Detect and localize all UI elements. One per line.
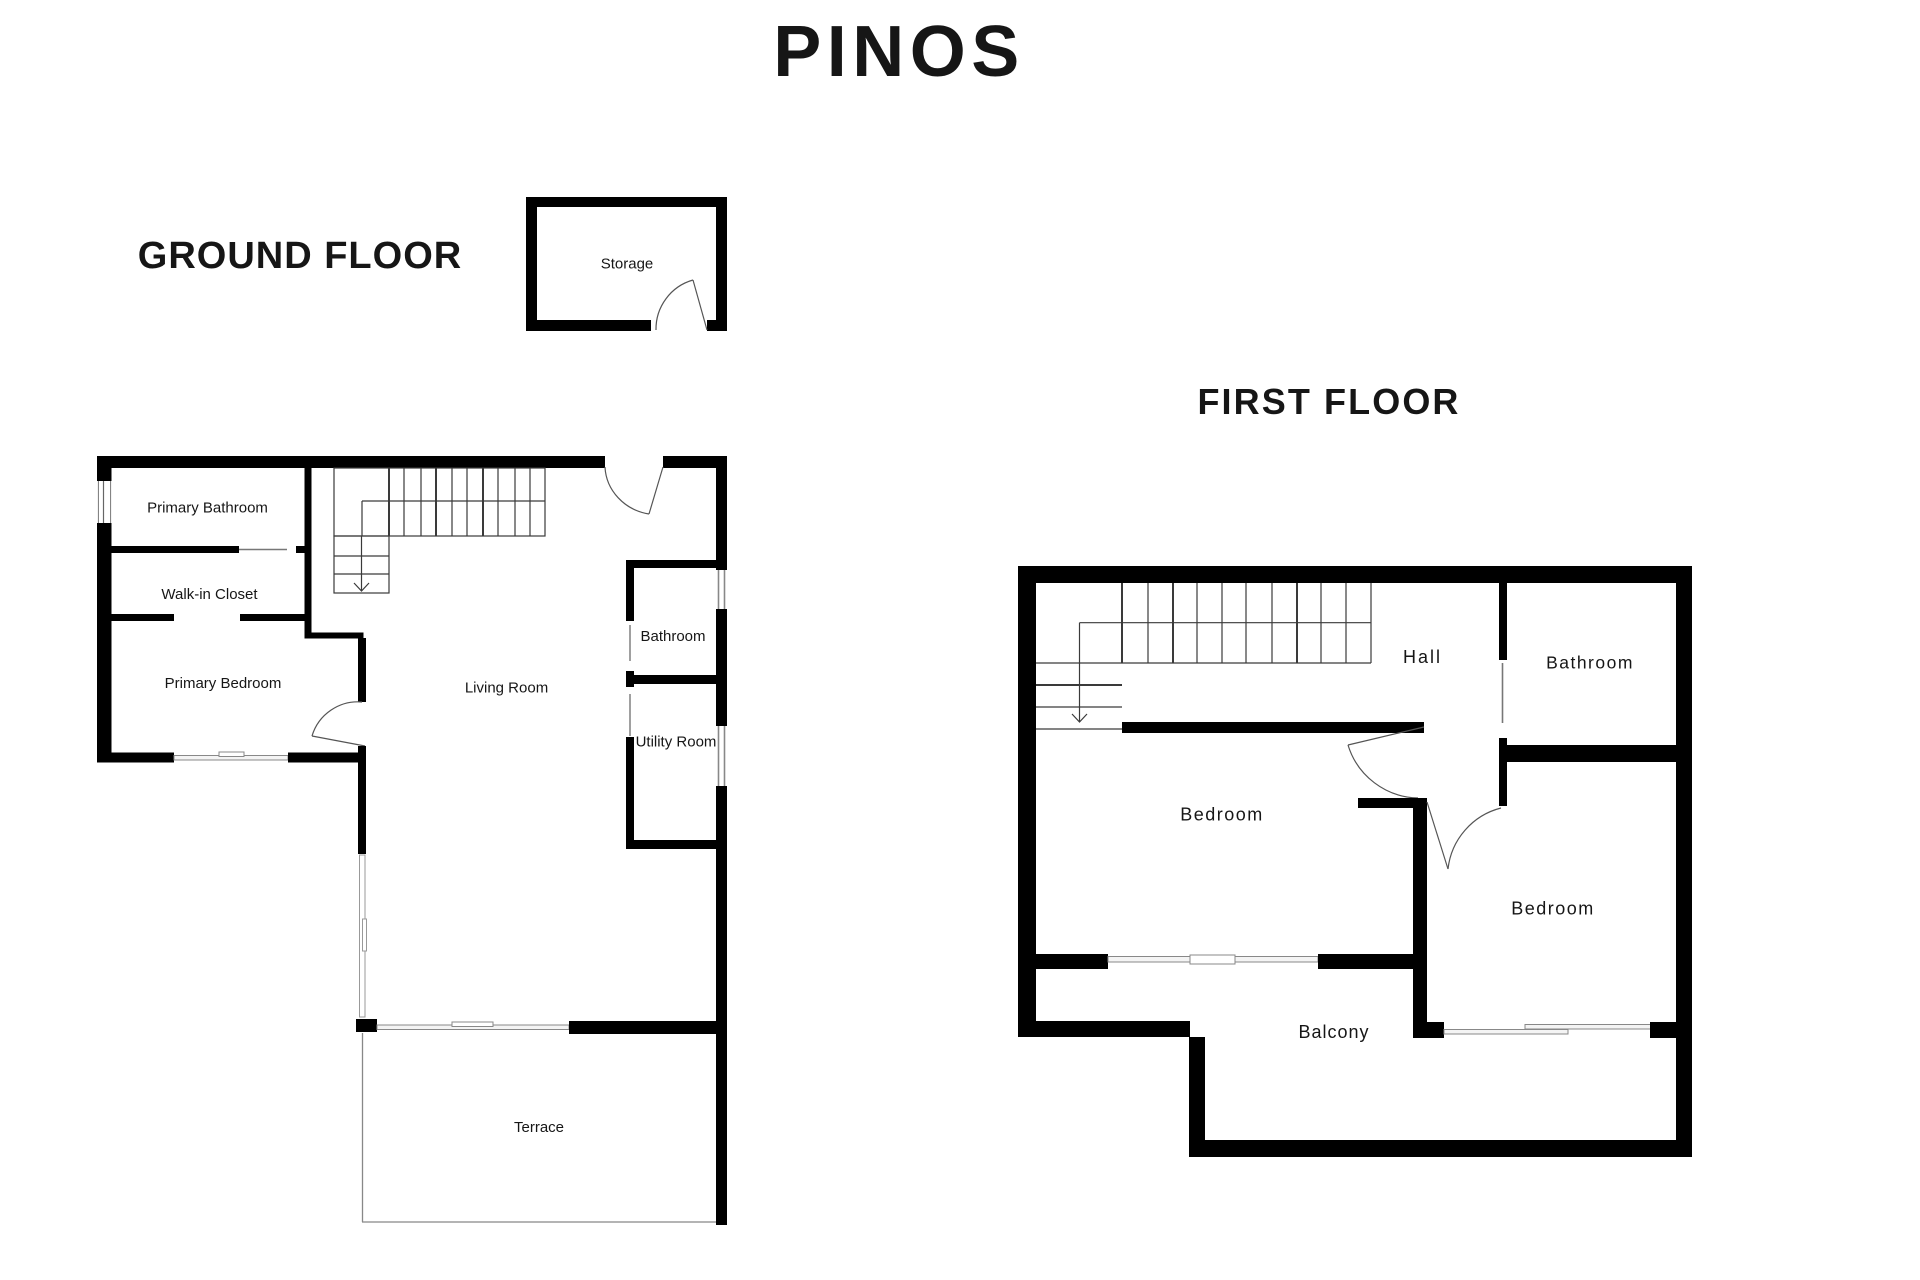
svg-text:Balcony: Balcony [1298,1022,1369,1042]
svg-text:FIRST FLOOR: FIRST FLOOR [1197,381,1460,422]
svg-text:Hall: Hall [1403,647,1442,667]
svg-text:Primary Bedroom: Primary Bedroom [165,675,282,692]
svg-text:Utility Room: Utility Room [636,734,717,751]
svg-text:Primary Bathroom: Primary Bathroom [147,500,268,517]
svg-text:Bedroom: Bedroom [1180,805,1264,825]
svg-text:Terrace: Terrace [514,1119,564,1136]
svg-text:GROUND FLOOR: GROUND FLOOR [138,235,462,277]
svg-text:Living Room: Living Room [465,680,548,697]
svg-text:Bathroom: Bathroom [1546,653,1634,673]
svg-text:Walk-in Closet: Walk-in Closet [161,586,258,603]
svg-text:PINOS: PINOS [773,12,1025,92]
svg-text:Bathroom: Bathroom [640,628,705,645]
svg-text:Storage: Storage [601,256,654,273]
svg-text:Bedroom: Bedroom [1511,899,1595,919]
